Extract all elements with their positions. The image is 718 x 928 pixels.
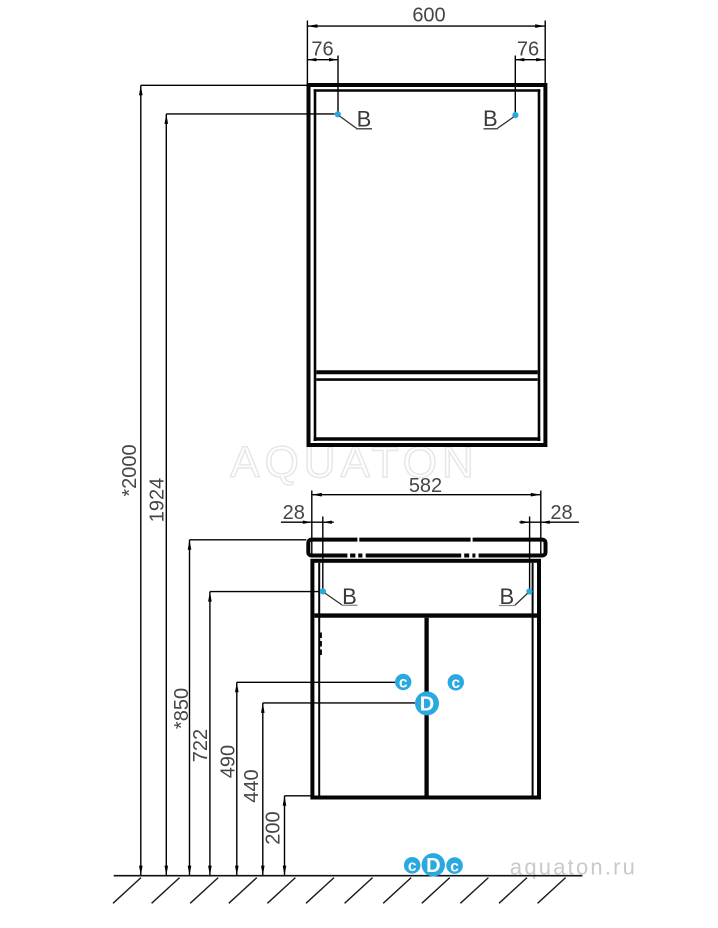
svg-text:B: B	[342, 584, 357, 609]
svg-text:c: c	[408, 858, 417, 875]
svg-text:28: 28	[283, 502, 305, 524]
svg-text:582: 582	[409, 475, 442, 497]
svg-text:B: B	[483, 106, 498, 131]
svg-text:200: 200	[263, 811, 285, 844]
svg-text:28: 28	[550, 502, 572, 524]
svg-text:440: 440	[241, 769, 263, 802]
svg-text:c: c	[399, 675, 408, 692]
svg-text:490: 490	[218, 745, 240, 778]
svg-text:c: c	[450, 858, 459, 875]
svg-text:*850: *850	[171, 688, 193, 729]
svg-text:722: 722	[190, 729, 212, 762]
svg-text:c: c	[451, 675, 460, 692]
svg-text:D: D	[426, 855, 440, 877]
svg-text:B: B	[357, 106, 372, 131]
svg-text:76: 76	[311, 39, 333, 61]
svg-text:76: 76	[517, 39, 539, 61]
svg-text:*2000: *2000	[119, 444, 141, 496]
svg-text:B: B	[500, 584, 515, 609]
svg-text:1924: 1924	[147, 478, 169, 523]
svg-text:600: 600	[412, 5, 445, 27]
svg-text:D: D	[420, 694, 434, 716]
